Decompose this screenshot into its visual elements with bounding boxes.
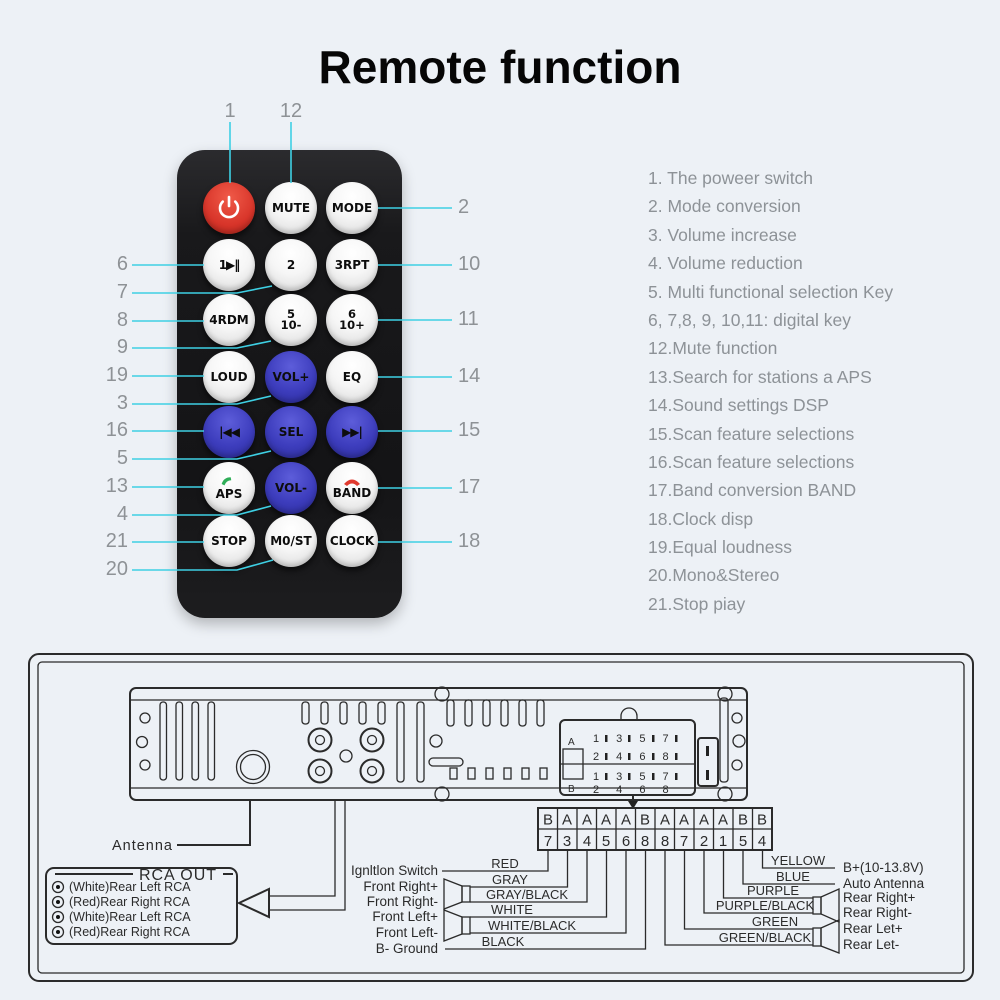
wire-color-label: PURPLE — [747, 883, 799, 898]
callout-11: 11 — [458, 308, 502, 331]
rca-item: (Red)Rear Right RCA — [69, 895, 191, 909]
front-left-speaker-icon — [444, 910, 470, 941]
previous-track-button[interactable]: |◀◀ — [203, 406, 255, 458]
callout-9: 9 — [84, 336, 128, 359]
pin-number: 8 — [641, 833, 649, 850]
pin-number: 1 — [719, 833, 727, 850]
iso-section-b-label: B — [568, 784, 575, 795]
key6-10plus-button[interactable]: 610+ — [326, 294, 378, 346]
antenna-connector — [237, 751, 270, 784]
wiring-diagram: A B 1 3 5 7 2 4 6 8 1 3 5 7 2 4 6 8 B — [25, 650, 975, 985]
callout-5: 5 — [84, 447, 128, 470]
wire-function-label: Rear Right+ — [843, 890, 916, 905]
list-item: 13.Search for stations a APS — [648, 367, 893, 395]
list-item: 16.Scan feature selections — [648, 452, 893, 480]
callout-2: 2 — [458, 196, 502, 219]
aps-button[interactable]: APS — [203, 462, 255, 514]
key5-10minus-button[interactable]: 510- — [265, 294, 317, 346]
button-label2: 10- — [281, 320, 302, 331]
button-label: MODE — [332, 202, 372, 215]
callout-20: 20 — [84, 558, 128, 581]
list-item: 18.Clock disp — [648, 509, 893, 537]
wire-color-label: GRAY/BLACK — [486, 887, 568, 902]
button-label: APS — [216, 488, 243, 500]
key4-random-button[interactable]: 4RDM — [203, 294, 255, 346]
button-label: VOL- — [275, 482, 307, 495]
pin-number: 8 — [661, 833, 669, 850]
wire-function-label: Front Left+ — [372, 909, 438, 924]
iso-section-a-label: A — [568, 737, 575, 748]
button-label: VOL+ — [273, 371, 310, 384]
pin-number: 4 — [758, 833, 766, 850]
callout-16: 16 — [84, 419, 128, 442]
connector-pin-table: B A A A A B A A A A B B 7 3 4 5 6 8 8 7 … — [538, 808, 772, 850]
power-icon — [216, 195, 242, 221]
callout-1: 1 — [215, 100, 245, 123]
list-item: 15.Scan feature selections — [648, 424, 893, 452]
button-label: MUTE — [272, 202, 310, 215]
list-item: 1. The poweer switch — [648, 168, 893, 196]
previous-icon: |◀◀ — [219, 426, 239, 439]
pin-number: 5 — [739, 833, 747, 850]
callout-17: 17 — [458, 476, 502, 499]
wire-function-label: Auto Antenna — [843, 876, 925, 891]
iso-pin-row: 1 3 5 7 — [593, 771, 669, 783]
stereo-rear-panel: A B 1 3 5 7 2 4 6 8 1 3 5 7 2 4 6 8 — [130, 687, 747, 801]
wire-function-label: Ignltlon Switch — [351, 863, 438, 878]
callout-6: 6 — [84, 253, 128, 276]
eq-button[interactable]: EQ — [326, 351, 378, 403]
pin-number: 6 — [622, 833, 630, 850]
callout-8: 8 — [84, 309, 128, 332]
button-label: LOUD — [210, 371, 247, 384]
rca-out-box: RCA OUT (White)Rear Left RCA (Red)Rear R… — [46, 867, 237, 944]
wire-function-label: Rear Right- — [843, 905, 912, 920]
wire-function-label: B- Ground — [376, 941, 438, 956]
callout-13: 13 — [84, 475, 128, 498]
button-label: 3RPT — [335, 259, 370, 272]
wire-color-label: YELLOW — [771, 853, 826, 868]
pin-letter: B — [757, 812, 767, 829]
rca-item: (Red)Rear Right RCA — [69, 925, 191, 939]
pin-number: 3 — [563, 833, 571, 850]
iso-connector-block: A B 1 3 5 7 2 4 6 8 1 3 5 7 2 4 6 8 — [560, 708, 718, 796]
button-label2: 10+ — [339, 320, 365, 331]
mode-button[interactable]: MODE — [326, 182, 378, 234]
next-icon: ▶▶| — [342, 426, 362, 439]
page-title: Remote function — [0, 40, 1000, 94]
pin-letter: A — [699, 812, 709, 829]
rca-plug-icon — [53, 912, 64, 923]
next-track-button[interactable]: ▶▶| — [326, 406, 378, 458]
clock-button[interactable]: CLOCK — [326, 515, 378, 567]
list-item: 4. Volume reduction — [648, 253, 893, 281]
power-button[interactable] — [203, 182, 255, 234]
list-item: 6, 7,8, 9, 10,11: digital key — [648, 310, 893, 338]
pin-number: 7 — [680, 833, 688, 850]
list-item: 19.Equal loudness — [648, 537, 893, 565]
stop-button[interactable]: STOP — [203, 515, 255, 567]
callout-7: 7 — [84, 281, 128, 304]
button-label: 2 — [287, 259, 295, 272]
rca-plug-icon — [53, 897, 64, 908]
rca-plug-icon — [53, 882, 64, 893]
list-item: 17.Band conversion BAND — [648, 480, 893, 508]
rear-left-speaker-icon — [813, 920, 839, 953]
front-right-speaker-icon — [444, 879, 470, 909]
button-label: 4RDM — [209, 314, 249, 327]
list-item: 2. Mode conversion — [648, 196, 893, 224]
callout-21: 21 — [84, 530, 128, 553]
wire-color-label: BLACK — [482, 934, 525, 949]
button-label: SEL — [279, 426, 304, 439]
pin-letter: A — [718, 812, 728, 829]
button-label: CLOCK — [330, 535, 374, 548]
select-button[interactable]: SEL — [265, 406, 317, 458]
wire-color-label: GREEN — [752, 914, 798, 929]
rca-item: (White)Rear Left RCA — [69, 880, 191, 894]
volume-up-button[interactable]: VOL+ — [265, 351, 317, 403]
wire-function-label: Rear Let- — [843, 937, 899, 952]
wire-color-label: PURPLE/BLACK — [716, 898, 815, 913]
iso-pin-row: 2 4 6 8 — [593, 784, 669, 796]
wire-color-label: GREEN/BLACK — [719, 930, 812, 945]
pin-letter: A — [621, 812, 631, 829]
wire-color-label: WHITE/BLACK — [488, 918, 576, 933]
list-item: 14.Sound settings DSP — [648, 395, 893, 423]
key2-button[interactable]: 2 — [265, 239, 317, 291]
pin-letter: A — [660, 812, 670, 829]
iso-pin-row: 1 3 5 7 — [593, 733, 669, 745]
rear-right-speaker-icon — [813, 889, 839, 922]
pin-letter: B — [640, 812, 650, 829]
pin-letter: A — [679, 812, 689, 829]
button-label: BAND — [333, 487, 371, 499]
rca-arrow — [239, 889, 269, 917]
key3-repeat-button[interactable]: 3RPT — [326, 239, 378, 291]
button-label: EQ — [343, 371, 361, 384]
pin-number: 2 — [700, 833, 708, 850]
key1-play-pause-button[interactable]: 1▶‖ — [203, 239, 255, 291]
wire-color-label: BLUE — [776, 869, 810, 884]
callout-12: 12 — [276, 100, 306, 123]
wire-function-label: Front Left- — [376, 925, 438, 940]
list-item: 12.Mute function — [648, 338, 893, 366]
iso-pin-row: 2 4 6 8 — [593, 751, 669, 763]
rca-plug-icon — [53, 927, 64, 938]
button-label: 1▶‖ — [219, 259, 240, 272]
mute-button[interactable]: MUTE — [265, 182, 317, 234]
pin-letter: A — [562, 812, 572, 829]
callout-10: 10 — [458, 253, 502, 276]
list-item: 3. Volume increase — [648, 225, 893, 253]
pin-number: 7 — [544, 833, 552, 850]
button-label: STOP — [211, 535, 247, 548]
wire-color-label: GRAY — [492, 872, 528, 887]
pin-letter: B — [543, 812, 553, 829]
wire-function-label: B+(10-13.8V) — [843, 860, 924, 875]
pin-number: 4 — [583, 833, 591, 850]
rca-item: (White)Rear Left RCA — [69, 910, 191, 924]
loud-button[interactable]: LOUD — [203, 351, 255, 403]
volume-down-button[interactable]: VOL- — [265, 462, 317, 514]
pin-letter: B — [738, 812, 748, 829]
wire-function-label: Front Right- — [367, 894, 438, 909]
callout-18: 18 — [458, 530, 502, 553]
pin-letter: A — [601, 812, 611, 829]
mono-stereo-button[interactable]: M0/ST — [265, 515, 317, 567]
remote-control: MUTE MODE 1▶‖ 2 3RPT 4RDM 510- 610+ LOUD… — [177, 150, 402, 618]
callout-4: 4 — [84, 503, 128, 526]
wire-color-label: WHITE — [491, 902, 533, 917]
pin-letter: A — [582, 812, 592, 829]
rca-jacks — [309, 729, 384, 783]
wire-color-label: RED — [491, 856, 518, 871]
button-label: M0/ST — [270, 535, 312, 548]
wire-function-label: Front Right+ — [363, 879, 438, 894]
antenna-label: Antenna — [112, 838, 173, 854]
pin-number: 5 — [602, 833, 610, 850]
list-item: 20.Mono&Stereo — [648, 565, 893, 593]
band-button[interactable]: BAND — [326, 462, 378, 514]
callout-15: 15 — [458, 419, 502, 442]
function-list: 1. The poweer switch 2. Mode conversion … — [648, 168, 893, 622]
callout-3: 3 — [84, 392, 128, 415]
wire-function-label: Rear Let+ — [843, 921, 903, 936]
list-item: 21.Stop piay — [648, 594, 893, 622]
list-item: 5. Multi functional selection Key — [648, 282, 893, 310]
callout-19: 19 — [84, 364, 128, 387]
callout-14: 14 — [458, 365, 502, 388]
